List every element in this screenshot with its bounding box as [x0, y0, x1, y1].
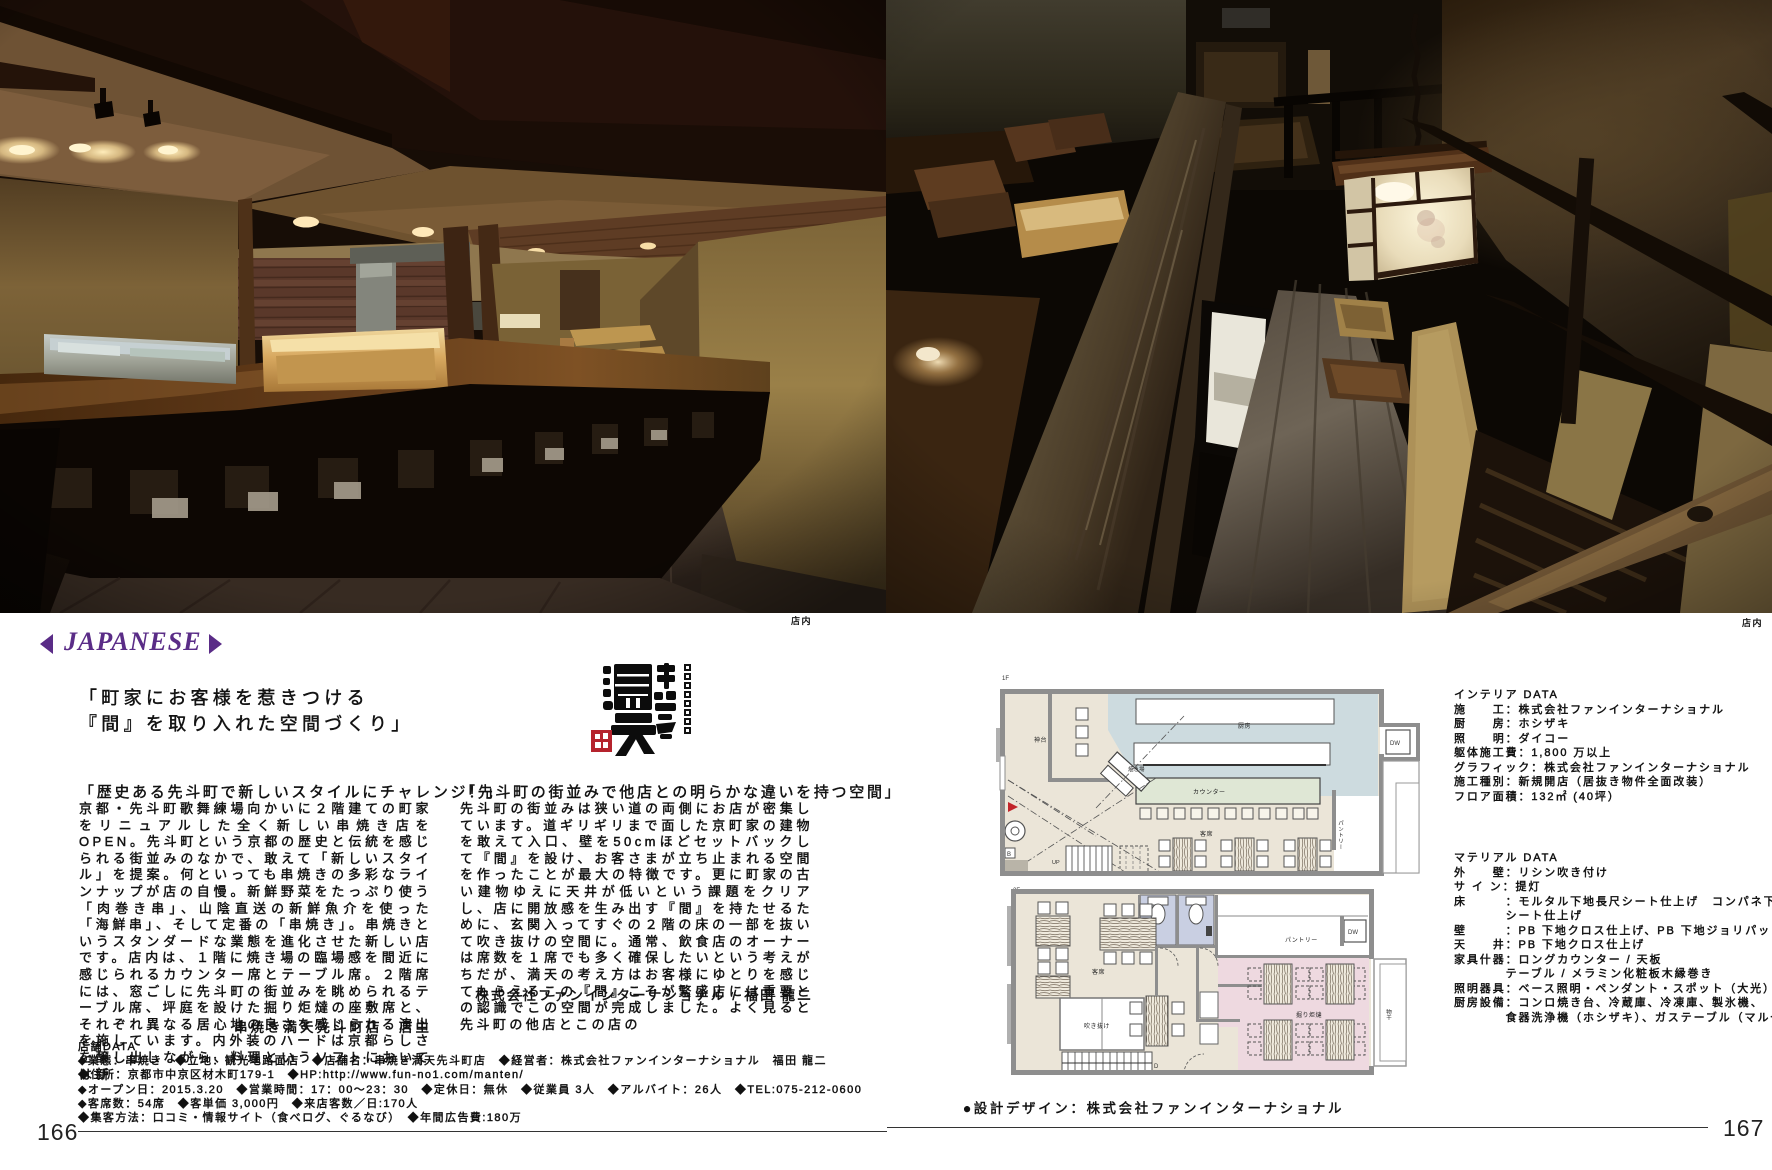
svg-text:パントリー: パントリー — [1337, 820, 1344, 850]
svg-text:客席: 客席 — [1200, 830, 1213, 838]
svg-text:神台: 神台 — [1034, 736, 1047, 744]
svg-text:DW: DW — [1390, 741, 1400, 747]
svg-text:1F: 1F — [1002, 676, 1009, 682]
svg-text:厨房: 厨房 — [1238, 722, 1251, 730]
svg-text:客席: 客席 — [1092, 968, 1105, 976]
svg-text:吹き抜け: 吹き抜け — [1084, 1022, 1110, 1030]
svg-text:パントリー: パントリー — [1285, 937, 1318, 944]
svg-text:D: D — [1154, 1064, 1159, 1070]
svg-text:DW: DW — [1348, 930, 1358, 936]
svg-text:焼き場: 焼き場 — [1128, 765, 1145, 773]
svg-text:カウンター: カウンター — [1193, 788, 1226, 796]
svg-text:UP: UP — [1052, 860, 1060, 866]
svg-text:B: B — [1007, 852, 1011, 858]
svg-text:物干: 物干 — [1385, 1008, 1392, 1022]
svg-text:掘り炬燵: 掘り炬燵 — [1296, 1011, 1322, 1019]
